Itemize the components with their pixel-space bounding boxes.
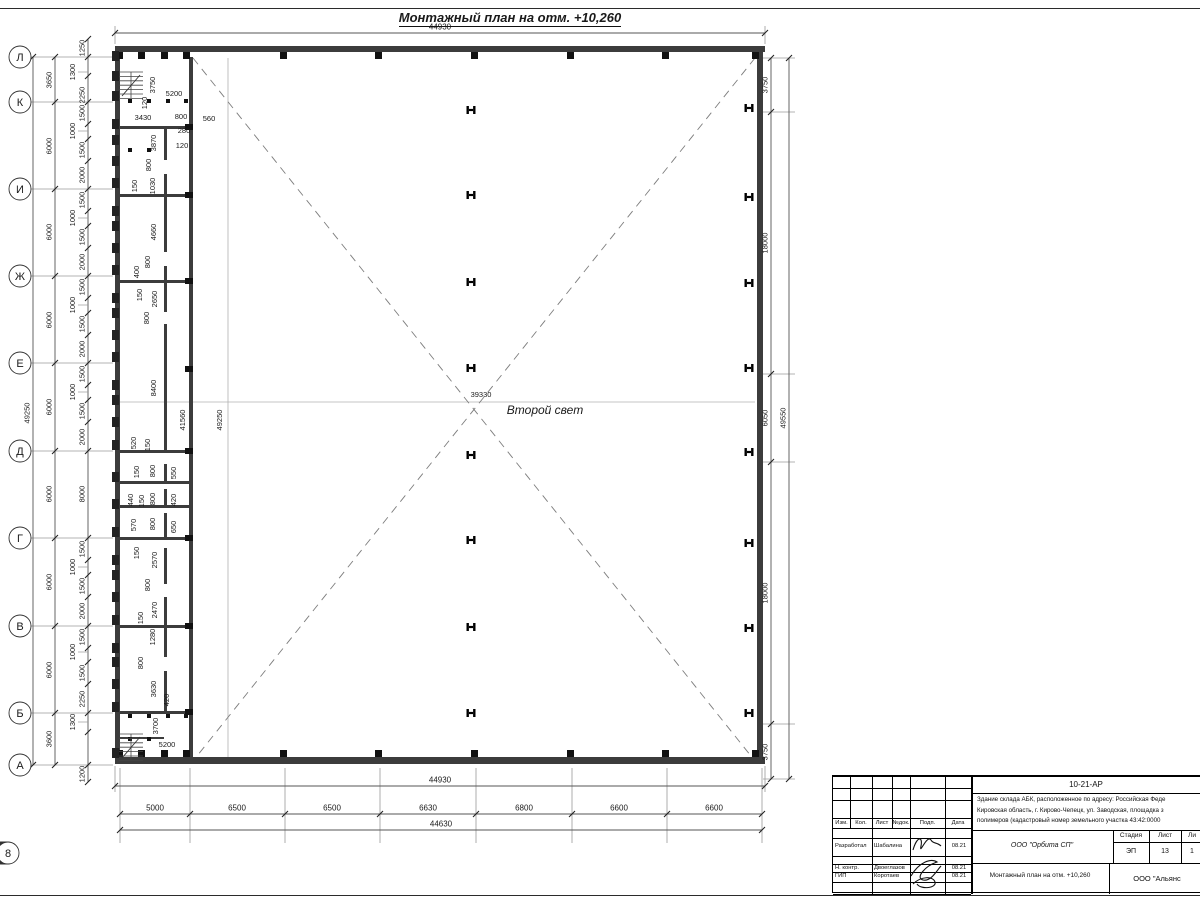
dimension-label: 6800 — [515, 804, 533, 813]
dimension-label: 520 — [129, 437, 138, 450]
dimension-label: 41560 — [178, 410, 187, 431]
titleblock-row-line — [971, 830, 1200, 831]
wall — [164, 174, 167, 252]
steel-column-flange — [745, 193, 747, 201]
axis-label: 8 — [5, 848, 11, 860]
wall — [115, 757, 765, 764]
dimension-label: 6000 — [45, 399, 54, 416]
wall — [119, 481, 189, 484]
axis-label: Б — [16, 708, 23, 720]
dimension-label: 1300 — [68, 64, 77, 81]
steel-column-flange — [745, 539, 747, 547]
wall-pilaster — [112, 748, 119, 758]
signature-strokes — [907, 832, 947, 890]
wall-pilaster — [112, 135, 119, 145]
dimension-label: 6000 — [45, 486, 54, 503]
wall-junction-mark — [185, 535, 193, 541]
steel-column-icon — [467, 191, 476, 199]
axis-label: Д — [16, 446, 24, 458]
axis-label: В — [16, 621, 23, 633]
column-mark — [471, 750, 478, 757]
steel-column-flange — [467, 364, 469, 372]
drawing-title: Монтажный план на отм. +10,260 — [320, 9, 700, 27]
column-mark — [280, 52, 287, 59]
steel-column-flange — [467, 278, 469, 286]
titleblock-name: Шабалина — [874, 843, 910, 849]
column-mark — [138, 52, 145, 59]
axis-label: К — [17, 97, 24, 109]
column-dot — [184, 99, 188, 103]
dimension-label: 150 — [132, 466, 141, 479]
dimension-label: 3700 — [151, 718, 160, 735]
stairs-icon — [119, 72, 143, 98]
steel-column-web — [747, 542, 751, 544]
steel-column-icon — [467, 623, 476, 631]
steel-column-flange — [745, 624, 747, 632]
steel-column-web — [469, 454, 473, 456]
wall — [119, 625, 189, 628]
wall — [164, 513, 167, 537]
titleblock-row-line — [833, 882, 971, 883]
dimension-label: 3600 — [45, 731, 54, 748]
dimension-label: 44630 — [430, 820, 453, 829]
montage-plan-svg: 4493044930500065006500663068006600660044… — [0, 0, 1200, 900]
dimension-label: 1300 — [68, 714, 77, 731]
dimension-label: 18000 — [761, 583, 770, 604]
steel-column-flange — [745, 279, 747, 287]
dimension-label: 6000 — [45, 312, 54, 329]
steel-column-icon — [745, 539, 754, 547]
wall-pilaster — [112, 51, 119, 61]
wall — [119, 280, 189, 283]
sheet-title: Монтажный план на отм. +10,260 — [973, 872, 1107, 879]
dimension-label: 570 — [129, 519, 138, 532]
steel-column-flange — [751, 624, 753, 632]
wall — [119, 450, 189, 453]
dimension-label: 1500 — [78, 142, 87, 159]
steel-column-web — [747, 367, 751, 369]
titleblock-header-cell: Кол. — [850, 820, 872, 826]
dimension-label: 150 — [130, 180, 139, 193]
dimension-label: 6000 — [45, 138, 54, 155]
dimension-label: 2570 — [150, 552, 159, 569]
steel-column-icon — [745, 364, 754, 372]
dimension-label: 3750 — [761, 744, 770, 761]
wall — [164, 464, 167, 481]
titleblock-row-line — [833, 788, 971, 789]
dimension-label: 420 — [169, 494, 178, 507]
dimension-label: 2000 — [78, 341, 87, 358]
steel-column-icon — [467, 536, 476, 544]
wall-pilaster — [112, 243, 119, 253]
dimension-label: 1500 — [78, 279, 87, 296]
sheet-frame-bottom — [0, 895, 1200, 896]
column-mark — [161, 750, 168, 757]
column-mark — [161, 52, 168, 59]
dimension-label: 6000 — [45, 662, 54, 679]
titleblock-row-line — [971, 793, 1200, 794]
steel-column-icon — [745, 709, 754, 717]
steel-column-flange — [751, 709, 753, 717]
dimension-label: 6500 — [228, 804, 246, 813]
dimension-label: 44930 — [429, 776, 452, 785]
wall-pilaster — [112, 527, 119, 537]
steel-column-web — [469, 109, 473, 111]
column-mark — [752, 52, 759, 59]
titleblock-col-line — [872, 776, 873, 894]
dimension-label: 3650 — [45, 72, 54, 89]
column-mark — [567, 52, 574, 59]
dimension-label: 1500 — [78, 105, 87, 122]
titleblock-role: ГИП — [835, 873, 872, 879]
column-mark — [280, 750, 287, 757]
dimension-label: 2000 — [78, 429, 87, 446]
dimension-label: 150 — [143, 439, 152, 452]
titleblock-row-line — [833, 818, 971, 819]
dimension-label: 3630 — [149, 681, 158, 698]
dimension-label: 3750 — [148, 77, 157, 94]
wall-pilaster — [112, 570, 119, 580]
dimension-label: 440 — [126, 494, 135, 507]
dimension-label: 1250 — [78, 40, 87, 57]
column-mark — [662, 52, 669, 59]
dimension-label: 2470 — [150, 602, 159, 619]
steel-column-flange — [751, 104, 753, 112]
axis-label: Л — [16, 52, 23, 64]
wall-pilaster — [112, 472, 119, 482]
wall-pilaster — [112, 592, 119, 602]
wall-pilaster — [112, 308, 119, 318]
wall-pilaster — [112, 221, 119, 231]
steel-column-flange — [751, 279, 753, 287]
steel-column-web — [469, 712, 473, 714]
wall — [164, 489, 167, 505]
wall-junction-mark — [185, 448, 193, 454]
dimension-label: 1000 — [68, 123, 77, 140]
wall-pilaster — [112, 499, 119, 509]
wall-pilaster — [112, 178, 119, 188]
steel-column-icon — [745, 104, 754, 112]
column-dot — [166, 714, 170, 718]
axis-label: А — [16, 760, 24, 772]
dimension-label: 6000 — [45, 574, 54, 591]
dimension-label: 6500 — [323, 804, 341, 813]
dimension-label: 560 — [203, 114, 216, 123]
second-light-label: Второй свет — [507, 403, 583, 417]
wall — [115, 46, 765, 52]
column-mark — [183, 52, 190, 59]
dimension-label: 8000 — [78, 486, 87, 503]
wall-pilaster — [112, 555, 119, 565]
steel-column-flange — [467, 451, 469, 459]
drawing-sheet: Монтажный план на отм. +10,260 449304493… — [0, 0, 1200, 900]
wall-pilaster — [112, 615, 119, 625]
wall-pilaster — [112, 71, 119, 81]
steel-column-icon — [467, 278, 476, 286]
steel-column-flange — [473, 191, 475, 199]
steel-column-web — [747, 627, 751, 629]
dimension-label: 1280 — [148, 629, 157, 646]
titleblock-col-line — [1109, 863, 1110, 894]
column-dot — [147, 714, 151, 718]
dimension-label: 3870 — [149, 135, 158, 152]
wall — [164, 597, 167, 657]
steel-column-web — [469, 367, 473, 369]
steel-column-icon — [467, 364, 476, 372]
wall-junction-mark — [185, 366, 193, 372]
dimension-label: 2250 — [78, 87, 87, 104]
dimension-label: 1500 — [78, 316, 87, 333]
steel-column-icon — [745, 193, 754, 201]
wall-pilaster — [112, 702, 119, 712]
steel-column-flange — [751, 539, 753, 547]
dimension-label: 150 — [132, 547, 141, 560]
dimension-label: 800 — [143, 256, 152, 269]
dimension-label: 18000 — [761, 233, 770, 254]
dimension-label: 1000 — [68, 644, 77, 661]
dimension-label: 1000 — [68, 384, 77, 401]
wall-junction-mark — [185, 278, 193, 284]
steel-column-icon — [745, 624, 754, 632]
titleblock-header-cell: Изм. — [833, 820, 850, 826]
steel-column-flange — [473, 623, 475, 631]
wall-junction-mark — [185, 623, 193, 629]
steel-column-web — [469, 626, 473, 628]
titleblock-header-cell: Подп. — [910, 820, 945, 826]
dimension-label: 49550 — [779, 408, 788, 429]
dimension-label: 1200 — [78, 766, 87, 783]
stage-table-header: Стадия — [1113, 832, 1149, 839]
dimension-label: 1000 — [68, 297, 77, 314]
titleblock-row-line — [971, 863, 1200, 864]
column-mark — [183, 750, 190, 757]
wall-pilaster — [112, 440, 119, 450]
dimension-label: 800 — [144, 159, 153, 172]
axis-label: Ж — [15, 271, 25, 283]
wall — [164, 266, 167, 312]
dimension-label: 2650 — [150, 291, 159, 308]
column-dot — [128, 148, 132, 152]
dimension-label: 5000 — [146, 804, 164, 813]
stage-table-header: Ли — [1181, 832, 1200, 839]
dimension-label: 2000 — [78, 603, 87, 620]
wall-pilaster — [112, 417, 119, 427]
column-dot — [128, 99, 132, 103]
wall-junction-mark — [185, 192, 193, 198]
steel-column-flange — [473, 536, 475, 544]
title-block: Изм.Кол.Лист№док.Подп.ДатаРазработалШаба… — [832, 775, 1200, 893]
dimension-label: 1500 — [78, 665, 87, 682]
dimension-label: 6600 — [705, 804, 723, 813]
steel-column-icon — [467, 451, 476, 459]
titleblock-header-cell: Дата — [945, 820, 971, 826]
steel-column-flange — [751, 364, 753, 372]
steel-column-icon — [745, 279, 754, 287]
dimension-label: 150 — [135, 289, 144, 302]
titleblock-date: 08.21 — [947, 873, 971, 879]
column-mark — [752, 750, 759, 757]
steel-column-flange — [467, 191, 469, 199]
steel-column-icon — [745, 448, 754, 456]
wall-pilaster — [112, 643, 119, 653]
wall-pilaster — [112, 293, 119, 303]
steel-column-web — [747, 451, 751, 453]
wall-pilaster — [112, 156, 119, 166]
project-description-line: полимеров (кадастровый номер земельного … — [977, 817, 1160, 824]
steel-column-web — [747, 107, 751, 109]
steel-column-web — [469, 194, 473, 196]
titleblock-row-line — [833, 894, 971, 895]
titleblock-role: Разработал — [835, 843, 872, 849]
steel-column-flange — [473, 106, 475, 114]
stage-table-value: 1 — [1181, 848, 1200, 855]
column-mark — [567, 750, 574, 757]
steel-column-flange — [467, 709, 469, 717]
steel-column-flange — [473, 364, 475, 372]
titleblock-row-line — [1113, 842, 1200, 843]
document-code: 10-21-АР — [971, 780, 1200, 789]
wall — [757, 52, 763, 757]
wall — [119, 537, 189, 540]
axis-label: Е — [16, 358, 23, 370]
wall-pilaster — [112, 679, 119, 689]
steel-column-web — [469, 281, 473, 283]
dimension-label: 2250 — [78, 691, 87, 708]
steel-column-icon — [467, 709, 476, 717]
project-description-line: Кировская область, г. Кирово-Чепецк, ул.… — [977, 807, 1164, 814]
steel-column-flange — [473, 451, 475, 459]
dimension-label: 2000 — [78, 254, 87, 271]
dimension-chain — [117, 811, 765, 817]
column-mark — [375, 52, 382, 59]
design-org: ООО "Орбита СП" — [971, 842, 1113, 849]
wall-pilaster — [112, 91, 119, 101]
dimension-label: 49250 — [23, 403, 32, 424]
dimension-label: 6000 — [45, 224, 54, 241]
steel-column-flange — [467, 623, 469, 631]
dimension-label: 150 — [137, 495, 146, 508]
column-dot — [128, 714, 132, 718]
dimension-label: 5200 — [159, 740, 176, 749]
column-mark — [375, 750, 382, 757]
steel-column-web — [469, 539, 473, 541]
wall — [164, 126, 167, 160]
dimension-label: 800 — [148, 465, 157, 478]
dimension-label: 1500 — [78, 366, 87, 383]
titleblock-row-line — [833, 856, 971, 857]
dimension-label: 800 — [148, 493, 157, 506]
dimension-label: 3750 — [761, 77, 770, 94]
dimension-label: 1500 — [78, 629, 87, 646]
steel-column-flange — [745, 364, 747, 372]
titleblock-date: 08.21 — [947, 843, 971, 849]
dimension-label: 3430 — [135, 113, 152, 122]
dimension-label: 6600 — [610, 804, 628, 813]
dimension-label: 1500 — [78, 541, 87, 558]
titleblock-role: Н. контр. — [835, 865, 872, 871]
wall-pilaster — [112, 119, 119, 129]
dimension-label: 1500 — [78, 192, 87, 209]
titleblock-date: 08.21 — [947, 865, 971, 871]
dimension-label: 2000 — [78, 167, 87, 184]
steel-column-flange — [745, 104, 747, 112]
dimension-label: 800 — [148, 518, 157, 531]
column-dot — [166, 99, 170, 103]
dimension-label: 8400 — [149, 380, 158, 397]
wall-pilaster — [112, 352, 119, 362]
dimension-label: 120 — [140, 97, 149, 110]
steel-column-flange — [751, 448, 753, 456]
project-description-line: Здание склада АБК, расположенное по адре… — [977, 796, 1165, 803]
steel-column-flange — [473, 709, 475, 717]
steel-column-web — [747, 712, 751, 714]
column-mark — [471, 52, 478, 59]
wall-pilaster — [112, 657, 119, 667]
stage-table-value: 13 — [1149, 848, 1181, 855]
dimension-label: 1000 — [68, 559, 77, 576]
dimension-label: 1500 — [78, 229, 87, 246]
steel-column-icon — [467, 106, 476, 114]
dimension-label: 150 — [136, 612, 145, 625]
dimension-label: 400 — [132, 266, 141, 279]
dimension-label: 1000 — [68, 210, 77, 227]
titleblock-name: Коротаев — [874, 873, 910, 879]
dimension-label: 650 — [169, 521, 178, 534]
dimension-label: 800 — [143, 579, 152, 592]
stage-table-value: ЭП — [1113, 848, 1149, 855]
wall-pilaster — [112, 265, 119, 275]
steel-column-flange — [745, 709, 747, 717]
dimension-label: 1500 — [78, 578, 87, 595]
dimension-label: 39330 — [471, 390, 492, 399]
dimension-label: 420 — [162, 694, 171, 707]
titleblock-row-line — [833, 838, 971, 839]
wall — [164, 324, 167, 450]
client-org: ООО "Альянс — [1111, 874, 1200, 883]
axis-label: И — [16, 184, 24, 196]
titleblock-row-line — [833, 828, 971, 829]
dimension-label: 49250 — [215, 410, 224, 431]
steel-column-flange — [751, 193, 753, 201]
stage-table-header: Лист — [1149, 832, 1181, 839]
dimension-label: 6050 — [761, 410, 770, 427]
titleblock-row-line — [833, 800, 971, 801]
dimension-label: 800 — [175, 112, 188, 121]
wall — [189, 57, 193, 757]
column-dot — [147, 737, 151, 741]
dimension-label: 550 — [169, 467, 178, 480]
wall-junction-mark — [185, 709, 193, 715]
steel-column-web — [747, 196, 751, 198]
titleblock-row-line — [833, 776, 1200, 777]
dimension-label: 6630 — [419, 804, 437, 813]
dimension-label: 800 — [136, 657, 145, 670]
wall-pilaster — [112, 395, 119, 405]
titleblock-name: Двоеглазов — [874, 865, 910, 871]
wall-pilaster — [112, 380, 119, 390]
drawing-title-text: Монтажный план на отм. +10,260 — [399, 10, 621, 27]
column-mark — [662, 750, 669, 757]
wall-pilaster — [112, 206, 119, 216]
titleblock-header-cell: №док. — [892, 820, 910, 826]
wall-pilaster — [112, 330, 119, 340]
dimension-label: 1500 — [78, 403, 87, 420]
wall — [119, 711, 189, 714]
wall — [164, 548, 167, 584]
steel-column-web — [747, 282, 751, 284]
dimension-label: 120 — [176, 141, 189, 150]
steel-column-flange — [467, 536, 469, 544]
